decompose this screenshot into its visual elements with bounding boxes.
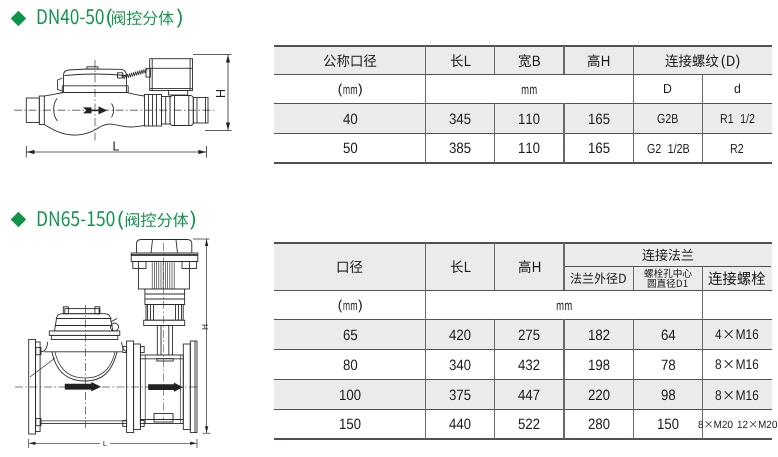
svg-text:L: L — [113, 140, 120, 154]
svg-text:H: H — [201, 324, 210, 330]
svg-text:L: L — [103, 439, 107, 448]
svg-text:H: H — [214, 89, 228, 98]
